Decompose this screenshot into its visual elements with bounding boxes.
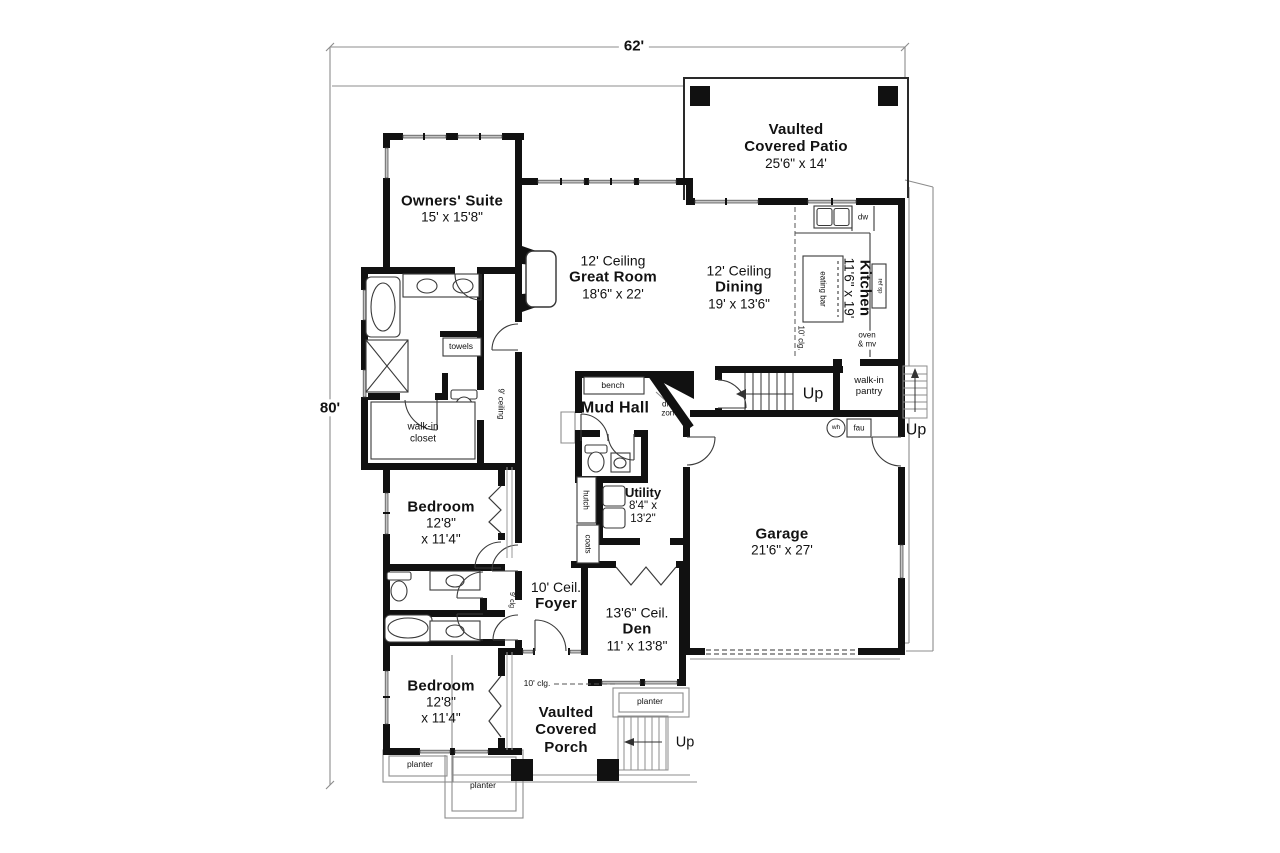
label-coats: coats (583, 534, 592, 553)
dimension-width: 62' (619, 37, 649, 54)
label-9-clg: 9' clg (507, 592, 515, 608)
label-9-ceiling: 9' ceiling (496, 389, 505, 420)
label-bench: bench (601, 381, 624, 391)
room-label-owners-suite: Owners' Suite 15' x 15'8" (401, 192, 503, 225)
label-up-interior-stairs: Up (803, 386, 823, 405)
label-walk-in-closet: walk-in closet (407, 421, 438, 444)
label-up-porch-steps: Up (676, 735, 695, 752)
room-label-great-room: 12' Ceiling Great Room 18'6" x 22' (569, 252, 657, 301)
room-label-patio: Vaulted Covered Patio 25'6" x 14' (744, 121, 847, 171)
porch-post (511, 759, 533, 781)
patio-post (878, 86, 898, 106)
stairs-interior (744, 373, 793, 410)
label-10-clg-porch: 10' clg. (524, 679, 551, 689)
room-label-bedroom-lower: Bedroom 12'8" x 11'4" (407, 678, 474, 727)
label-wh: wh (832, 424, 840, 432)
label-walk-in-pantry: walk-in pantry (854, 375, 884, 397)
fireplace (522, 246, 556, 312)
room-label-garage: Garage 21'6" x 27' (751, 525, 813, 558)
label-drop-zone: drop zone (661, 400, 678, 419)
room-label-kitchen: Kitchen 11'6" x 19' (840, 258, 873, 319)
label-towels: towels (449, 342, 473, 352)
label-planter-left: planter (407, 760, 433, 770)
room-label-utility: Utility 8'4" x 13'2" (625, 485, 661, 527)
label-hutch: hutch (581, 490, 590, 510)
garage-door (705, 648, 858, 656)
label-ref: ref sp (876, 278, 883, 293)
label-10-clg-kitchen: 10' clg. (796, 325, 805, 350)
room-label-dining: 12' Ceiling Dining 19' x 13'6" (707, 262, 772, 311)
label-planter-center: planter (470, 781, 496, 791)
room-label-porch: Vaulted Covered Porch (535, 704, 596, 756)
patio-post (690, 86, 710, 106)
label-up-exterior-stairs: Up (906, 422, 926, 441)
porch-post (597, 759, 619, 781)
label-oven-mv: oven & mv (858, 331, 876, 350)
label-dw: dw (858, 212, 868, 221)
stairs-interior-arrow (736, 389, 746, 399)
room-label-mud-hall: Mud Hall (581, 400, 649, 419)
label-fau: fau (853, 423, 864, 432)
label-eating-bar: eating bar (818, 271, 827, 307)
floor-plan-page: 62' 80' Vaulted Covered Patio 25'6" x 14… (0, 0, 1280, 853)
floor-plan-drawing (0, 0, 1280, 853)
porch-steps (618, 716, 668, 770)
dimension-height: 80' (315, 399, 345, 416)
stairs-exterior-arrow (911, 368, 919, 378)
porch-steps-arrow (624, 738, 634, 746)
room-label-den: 13'6" Ceil. Den 11' x 13'8" (606, 604, 669, 653)
room-label-foyer: 10' Ceil. Foyer (531, 579, 581, 613)
room-label-bedroom-upper: Bedroom 12'8" x 11'4" (407, 499, 474, 548)
label-planter-right: planter (637, 697, 663, 707)
